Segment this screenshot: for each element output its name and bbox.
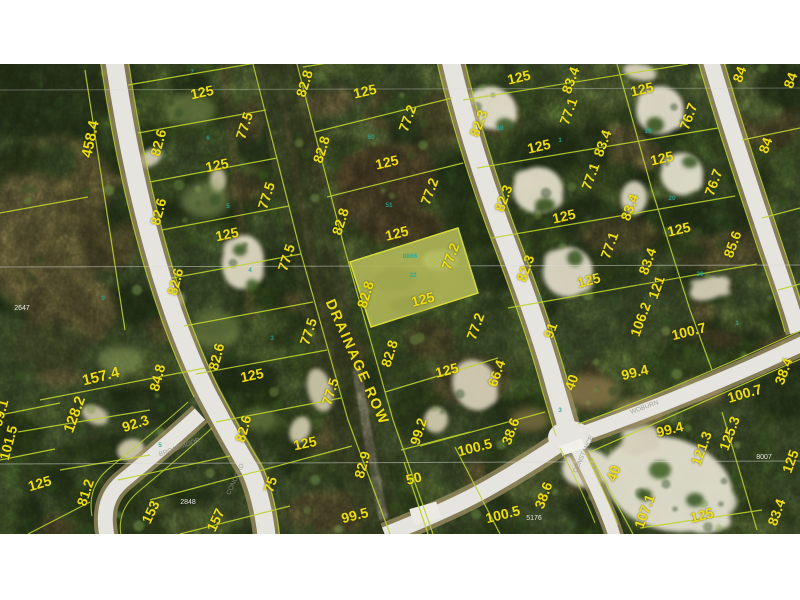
svg-text:2647: 2647 <box>14 305 30 312</box>
svg-text:1: 1 <box>735 320 739 327</box>
svg-text:30: 30 <box>696 271 704 278</box>
svg-text:8866: 8866 <box>403 253 418 260</box>
svg-text:51: 51 <box>385 202 393 209</box>
svg-text:6: 6 <box>206 135 210 142</box>
svg-text:9: 9 <box>101 295 105 302</box>
svg-text:1: 1 <box>558 137 562 144</box>
svg-text:3: 3 <box>558 407 562 414</box>
svg-text:2: 2 <box>538 295 542 302</box>
svg-text:4: 4 <box>248 267 252 274</box>
svg-text:50: 50 <box>367 134 375 141</box>
svg-text:5176: 5176 <box>526 515 542 522</box>
svg-text:32: 32 <box>409 272 417 279</box>
svg-text:8007: 8007 <box>756 454 772 461</box>
svg-text:10: 10 <box>496 125 504 132</box>
svg-text:20: 20 <box>668 195 676 202</box>
svg-text:2848: 2848 <box>180 499 196 506</box>
svg-text:5: 5 <box>158 442 162 449</box>
svg-text:5: 5 <box>226 203 230 210</box>
svg-text:7: 7 <box>190 69 194 76</box>
svg-text:3: 3 <box>270 335 274 342</box>
svg-text:19: 19 <box>644 128 652 135</box>
